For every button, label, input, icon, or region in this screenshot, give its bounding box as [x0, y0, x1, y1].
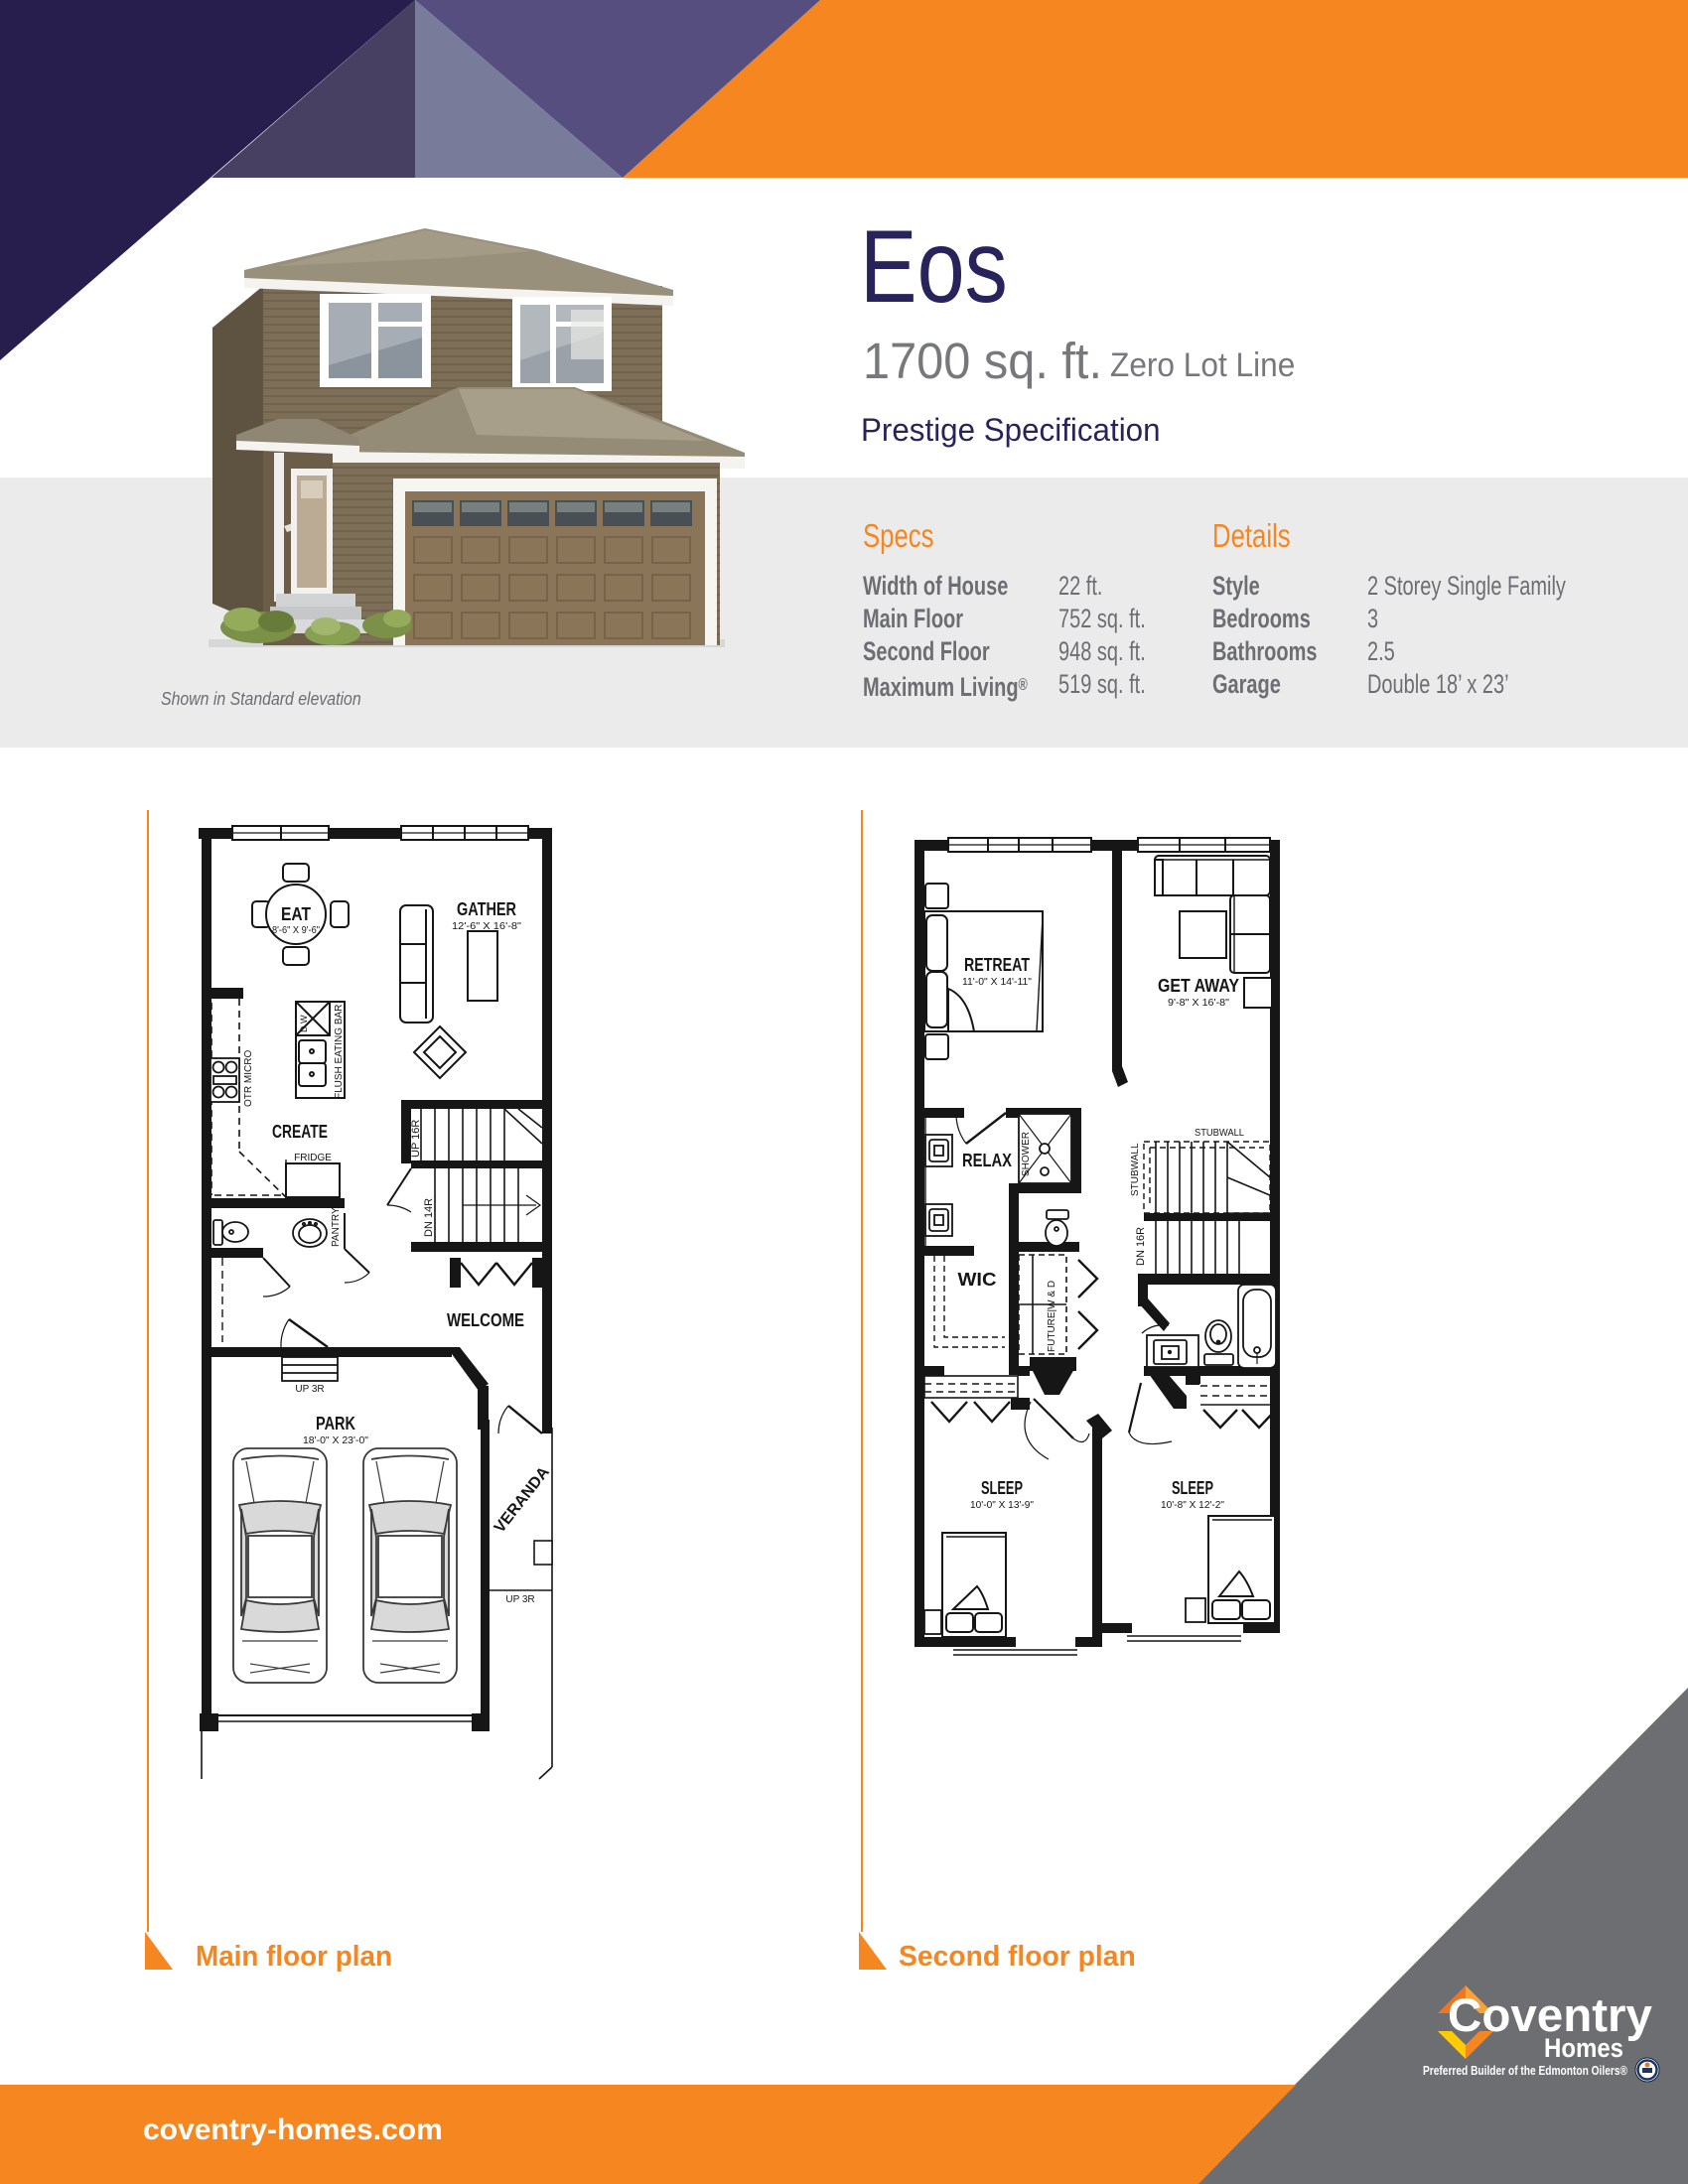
- svg-text:DN 16R: DN 16R: [1135, 1227, 1147, 1266]
- svg-text:Homes: Homes: [1544, 2033, 1623, 2063]
- svg-text:FRIDGE: FRIDGE: [294, 1153, 332, 1163]
- svg-text:GET AWAY: GET AWAY: [1158, 976, 1239, 996]
- svg-text:11'-0" X 14'-11": 11'-0" X 14'-11": [962, 977, 1032, 988]
- svg-text:10'-8" X 12'-2": 10'-8" X 12'-2": [1161, 1500, 1224, 1511]
- svg-text:STUBWALL: STUBWALL: [1130, 1143, 1141, 1196]
- svg-text:D.W: D.W: [299, 1015, 309, 1032]
- svg-text:UP 3R: UP 3R: [295, 1384, 324, 1395]
- svg-text:CREATE: CREATE: [272, 1122, 328, 1142]
- svg-text:FLUSH EATING BAR: FLUSH EATING BAR: [334, 1005, 345, 1099]
- svg-text:WELCOME: WELCOME: [447, 1310, 524, 1330]
- svg-text:DN 14R: DN 14R: [423, 1198, 435, 1237]
- svg-text:UP 16R: UP 16R: [410, 1120, 422, 1158]
- svg-text:RELAX: RELAX: [962, 1151, 1012, 1170]
- svg-text:SLEEP: SLEEP: [1172, 1478, 1213, 1498]
- svg-text:PARK: PARK: [316, 1414, 355, 1433]
- svg-text:10'-0" X 13'-9": 10'-0" X 13'-9": [970, 1500, 1034, 1511]
- svg-text:PANTRY: PANTRY: [331, 1207, 342, 1247]
- svg-text:OTR MICRO: OTR MICRO: [243, 1050, 254, 1107]
- svg-text:SLEEP: SLEEP: [981, 1478, 1023, 1498]
- svg-text:EAT: EAT: [281, 904, 311, 924]
- svg-text:SHOWER: SHOWER: [1021, 1132, 1032, 1176]
- svg-text:STUBWALL: STUBWALL: [1195, 1128, 1244, 1139]
- svg-text:9'-8" X 16'-8": 9'-8" X 16'-8": [1168, 998, 1229, 1009]
- svg-text:UP 3R: UP 3R: [505, 1594, 534, 1605]
- svg-text:WIC: WIC: [958, 1270, 997, 1290]
- svg-text:VERANDA: VERANDA: [492, 1463, 553, 1536]
- svg-text:RETREAT: RETREAT: [964, 955, 1030, 975]
- svg-text:18'-0" X 23'-0": 18'-0" X 23'-0": [303, 1435, 368, 1446]
- svg-text:Preferred Builder of the Edmon: Preferred Builder of the Edmonton Oilers…: [1423, 2064, 1628, 2078]
- svg-text:FUTURE|W & D: FUTURE|W & D: [1047, 1281, 1057, 1352]
- svg-text:8'-6" X 9'-6": 8'-6" X 9'-6": [272, 925, 320, 936]
- svg-text:GATHER: GATHER: [457, 899, 516, 919]
